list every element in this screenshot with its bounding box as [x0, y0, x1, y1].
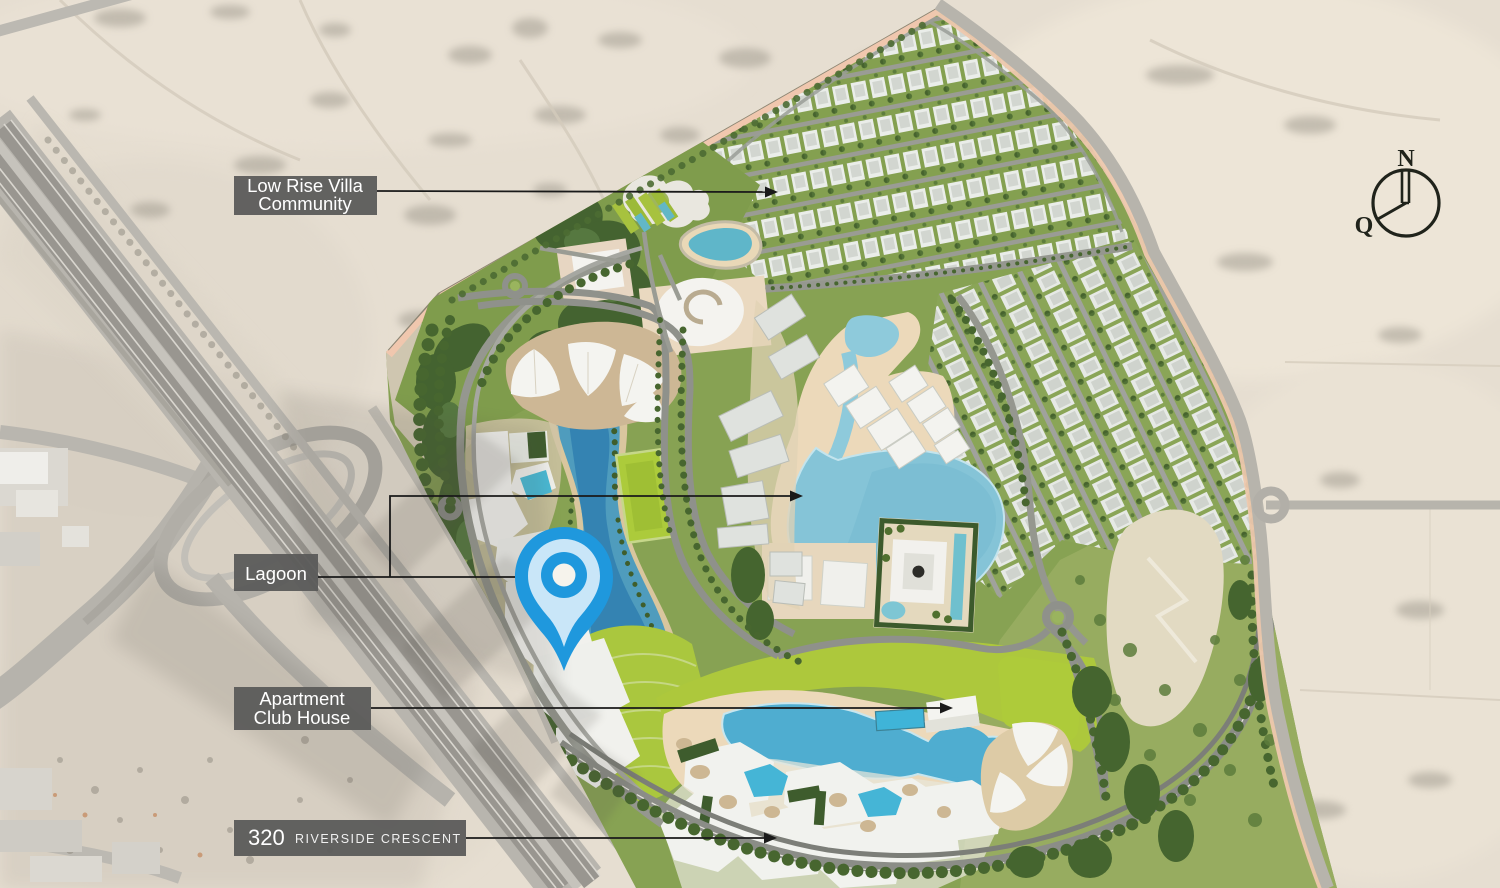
svg-text:RIVERSIDE CRESCENT: RIVERSIDE CRESCENT	[295, 832, 462, 846]
svg-text:Community: Community	[258, 193, 352, 214]
svg-text:Apartment: Apartment	[259, 688, 344, 709]
svg-text:Q: Q	[1355, 213, 1374, 239]
svg-text:N: N	[1397, 146, 1415, 172]
svg-text:320: 320	[248, 825, 285, 850]
svg-text:Club House: Club House	[254, 707, 351, 728]
svg-text:Lagoon: Lagoon	[245, 563, 307, 584]
